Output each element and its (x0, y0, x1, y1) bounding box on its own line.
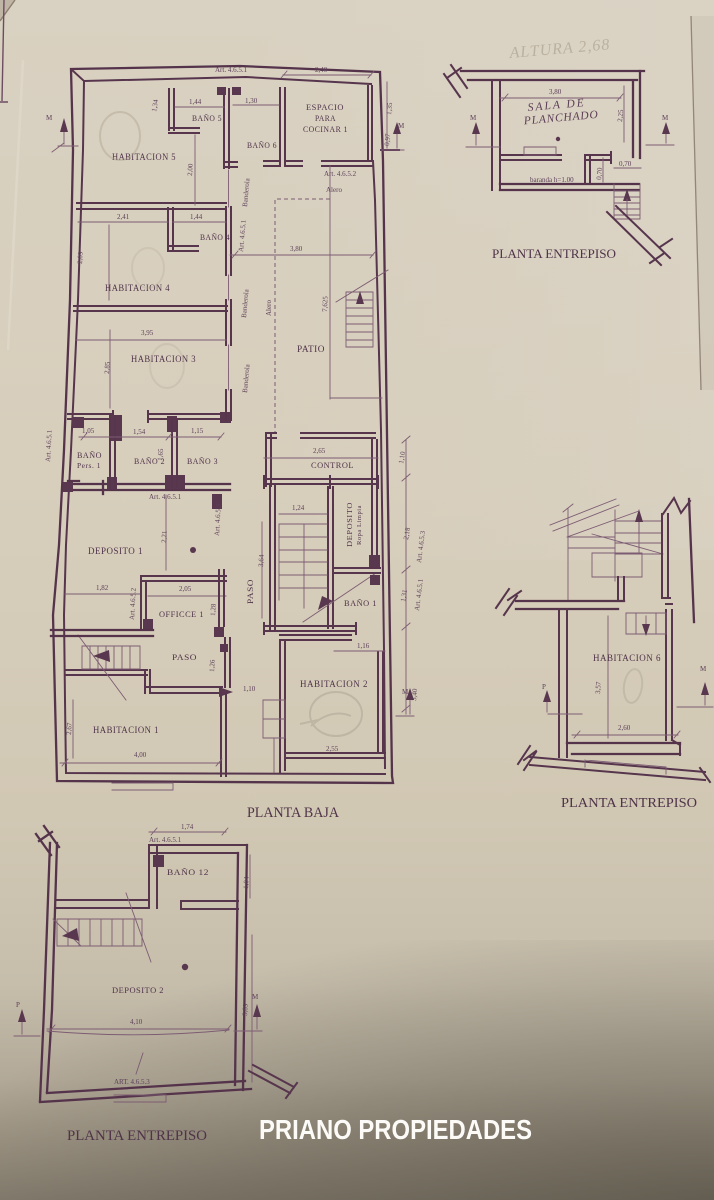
svg-text:M: M (398, 122, 405, 130)
svg-text:2,65: 2,65 (313, 447, 326, 455)
svg-text:Art. 4.6.5.1: Art. 4.6.5.1 (149, 836, 182, 844)
svg-text:1,26: 1,26 (208, 659, 217, 672)
svg-text:PRIANO PROPIEDADES: PRIANO PROPIEDADES (259, 1114, 532, 1145)
svg-text:4,10: 4,10 (130, 1018, 143, 1026)
svg-text:baranda h=1.00: baranda h=1.00 (530, 176, 574, 184)
svg-text:Art. 4.6.5.1: Art. 4.6.5.1 (44, 429, 54, 462)
svg-text:1,28: 1,28 (209, 603, 218, 616)
svg-text:3,80: 3,80 (290, 245, 303, 253)
svg-text:DEPOSITO 1: DEPOSITO 1 (88, 546, 143, 556)
svg-text:0,70: 0,70 (619, 160, 632, 168)
svg-text:7,625: 7,625 (321, 296, 330, 313)
svg-text:Alero: Alero (326, 186, 342, 194)
svg-text:BAÑO: BAÑO (77, 450, 102, 460)
svg-text:Alero: Alero (265, 300, 273, 316)
svg-text:M: M (470, 114, 477, 122)
svg-text:PASO: PASO (172, 652, 197, 662)
svg-text:2,21: 2,21 (160, 530, 169, 543)
svg-text:M: M (252, 993, 259, 1001)
svg-text:3,57: 3,57 (594, 681, 603, 694)
svg-text:P: P (16, 1001, 20, 1009)
svg-text:COCINAR 1: COCINAR 1 (303, 125, 348, 134)
svg-text:HABITACION 2: HABITACION 2 (300, 679, 368, 689)
svg-text:PLANTA ENTREPISO: PLANTA ENTREPISO (492, 246, 616, 261)
svg-text:Art. 4.6.5.3: Art. 4.6.5.3 (213, 503, 223, 536)
svg-text:Pers. 1: Pers. 1 (77, 462, 101, 470)
svg-text:1,44: 1,44 (189, 98, 202, 106)
svg-text:Ropa Limpia: Ropa Limpia (357, 505, 363, 545)
svg-text:Art. 4.6.5.2: Art. 4.6.5.2 (324, 170, 357, 178)
svg-text:3,89: 3,89 (241, 1003, 250, 1016)
svg-text:2,67: 2,67 (65, 722, 74, 735)
svg-text:M: M (700, 665, 707, 673)
svg-text:M: M (662, 114, 669, 122)
svg-text:4,00: 4,00 (134, 751, 147, 759)
svg-text:PARA: PARA (315, 114, 336, 123)
svg-text:1,74: 1,74 (181, 823, 194, 831)
svg-text:BAÑO 3: BAÑO 3 (187, 456, 218, 466)
svg-text:CONTROL: CONTROL (311, 460, 354, 470)
svg-text:1,04: 1,04 (242, 876, 251, 889)
svg-text:1,82: 1,82 (96, 584, 109, 592)
svg-text:M: M (402, 688, 409, 696)
svg-text:DEPOSITO 2: DEPOSITO 2 (112, 985, 164, 995)
svg-text:BAÑO 4: BAÑO 4 (200, 232, 230, 242)
svg-text:BAÑO 6: BAÑO 6 (247, 140, 277, 150)
svg-text:2,60: 2,60 (618, 724, 631, 732)
svg-text:2,09: 2,09 (76, 251, 85, 264)
svg-text:Art. 4.6.5.1: Art. 4.6.5.1 (149, 493, 182, 501)
svg-text:1,24: 1,24 (292, 504, 305, 512)
svg-text:1,44: 1,44 (190, 213, 203, 221)
svg-text:2,00: 2,00 (186, 163, 195, 176)
svg-text:1,35: 1,35 (385, 102, 394, 115)
svg-text:HABITACION 6: HABITACION 6 (593, 653, 661, 663)
svg-text:3,40: 3,40 (410, 688, 419, 701)
svg-text:DEPOSITO: DEPOSITO (346, 502, 354, 547)
svg-text:ART. 4.6.5.3: ART. 4.6.5.3 (114, 1078, 150, 1086)
svg-text:1,16: 1,16 (357, 642, 370, 650)
svg-text:Art. 4.6.5.2: Art. 4.6.5.2 (128, 587, 138, 620)
svg-text:1,30: 1,30 (245, 97, 258, 105)
svg-text:1,10: 1,10 (243, 685, 256, 693)
svg-text:1,05: 1,05 (82, 427, 95, 435)
svg-text:1,54: 1,54 (133, 428, 146, 436)
svg-text:Art. 4.6.5.1: Art. 4.6.5.1 (215, 66, 248, 74)
svg-text:HABITACION 1: HABITACION 1 (93, 725, 159, 735)
svg-text:1,65: 1,65 (156, 448, 165, 461)
svg-text:PLANTA ENTREPISO: PLANTA ENTREPISO (67, 1128, 207, 1144)
svg-text:2,25: 2,25 (616, 109, 625, 122)
svg-text:HABITACION 3: HABITACION 3 (131, 354, 196, 364)
svg-text:OFFICCE 1: OFFICCE 1 (159, 609, 204, 619)
svg-text:1,15: 1,15 (191, 427, 204, 435)
svg-text:PATIO: PATIO (297, 344, 325, 354)
svg-text:2,05: 2,05 (179, 585, 192, 593)
svg-text:M: M (46, 114, 53, 122)
svg-text:0,97: 0,97 (383, 133, 392, 146)
svg-text:BAÑO 5: BAÑO 5 (192, 113, 222, 123)
svg-text:ESPACIO: ESPACIO (306, 103, 344, 112)
svg-text:PLANTA ENTREPISO: PLANTA ENTREPISO (561, 796, 697, 811)
svg-text:2,41: 2,41 (117, 213, 130, 221)
svg-text:3,80: 3,80 (549, 88, 562, 96)
svg-text:BAÑO 1: BAÑO 1 (344, 598, 377, 608)
svg-text:2,85: 2,85 (103, 361, 112, 374)
svg-text:0,70: 0,70 (595, 167, 604, 180)
svg-text:2,40: 2,40 (315, 66, 328, 74)
svg-text:3,64: 3,64 (257, 554, 266, 567)
svg-text:3,95: 3,95 (141, 329, 154, 337)
svg-text:PASO: PASO (245, 579, 255, 604)
svg-text:P: P (542, 683, 546, 691)
svg-text:BAÑO 12: BAÑO 12 (167, 867, 209, 877)
svg-text:2,55: 2,55 (326, 745, 339, 753)
svg-text:PLANTA BAJA: PLANTA BAJA (247, 805, 340, 821)
